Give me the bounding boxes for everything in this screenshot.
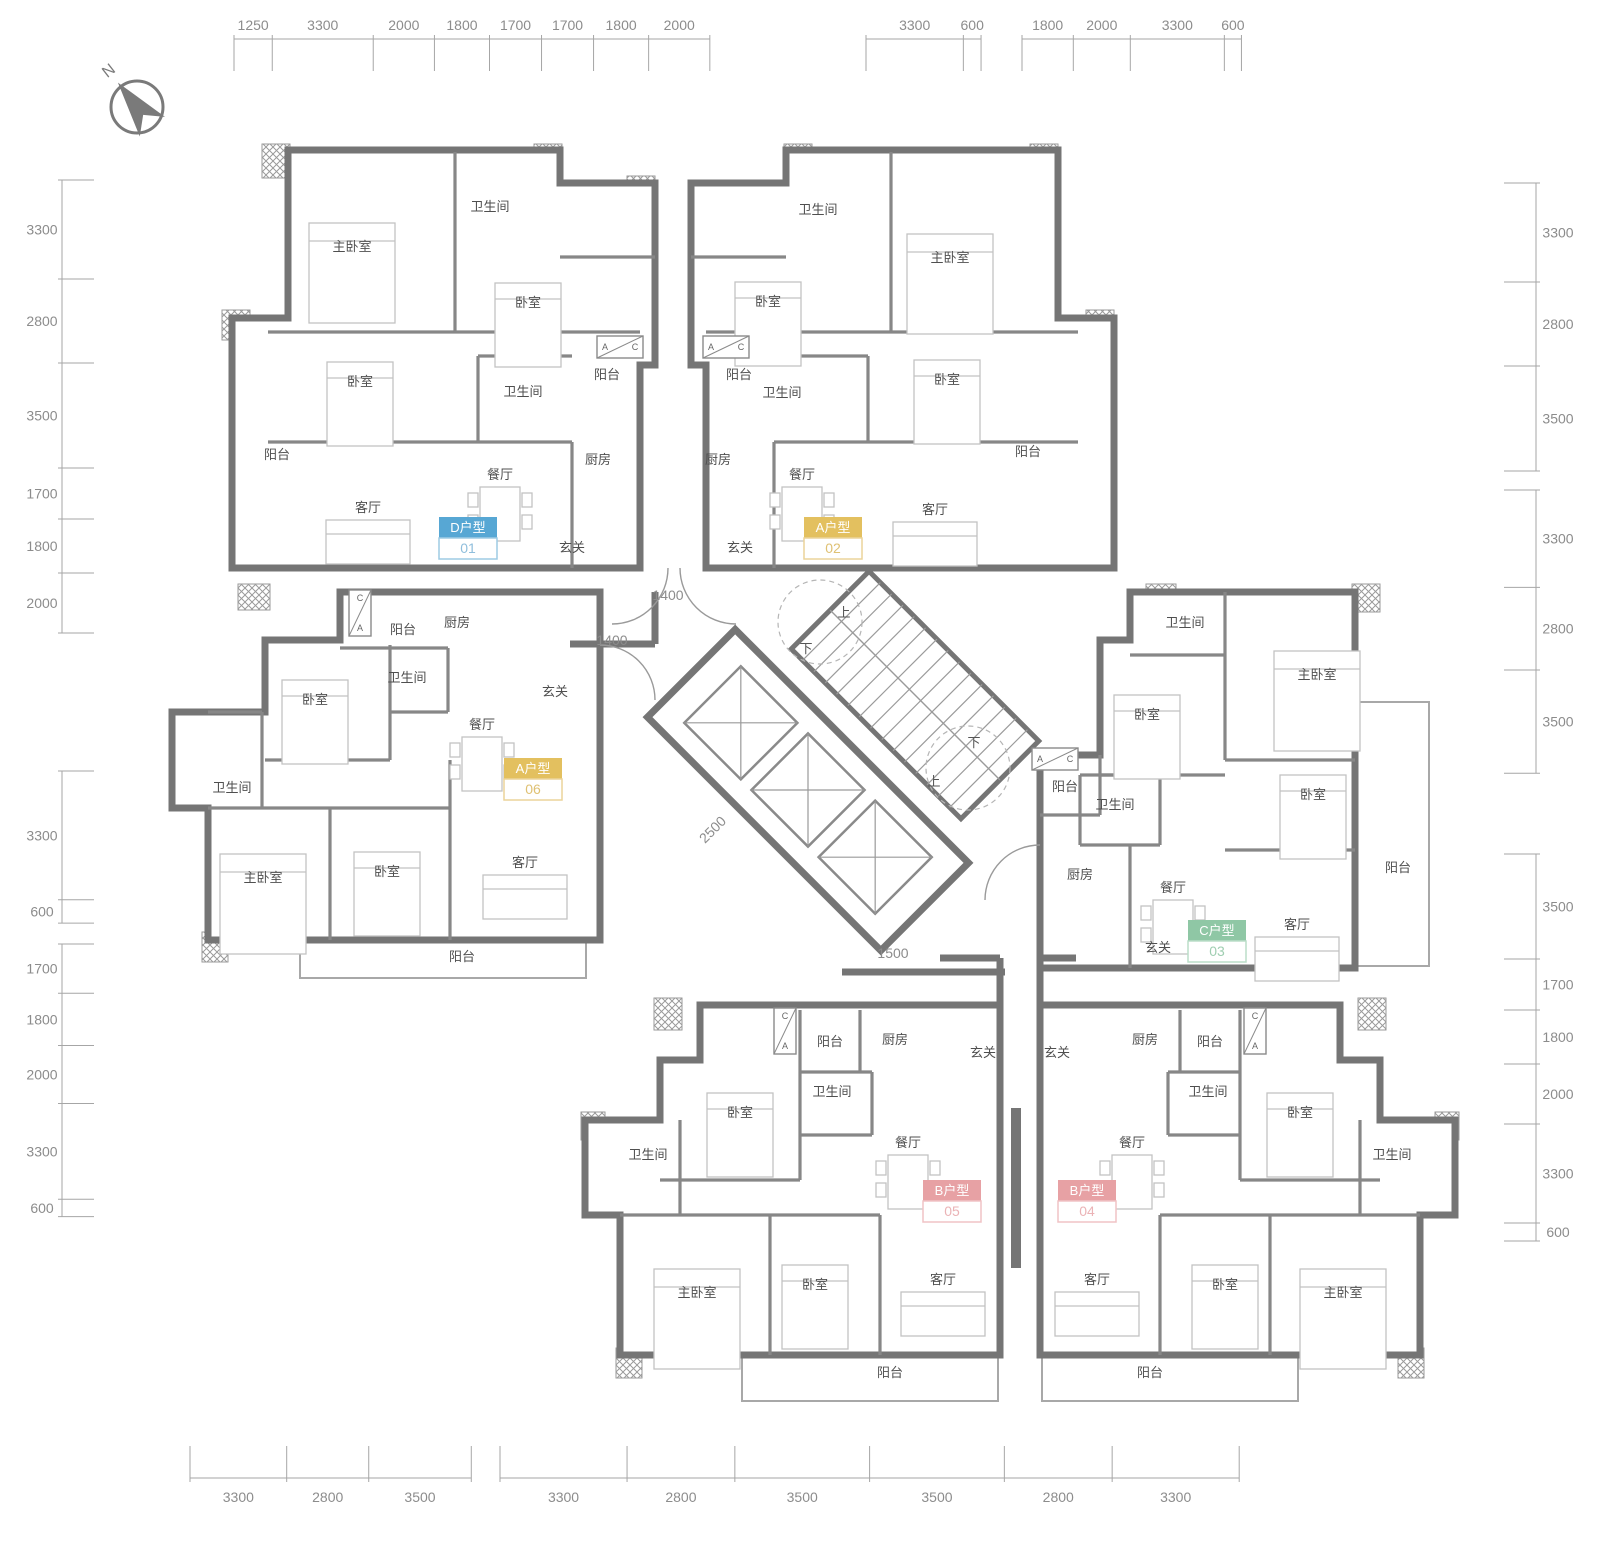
unit-type-label: A户型 (516, 761, 551, 776)
dimension-value: 600 (1221, 17, 1245, 33)
room-label: 厨房 (882, 1032, 908, 1047)
room-label: 阳台 (390, 622, 416, 637)
dimension-value: 3300 (223, 1489, 254, 1505)
room-label: 客厅 (1084, 1272, 1110, 1287)
sofa (1255, 937, 1339, 981)
balcony-rail (1042, 1357, 1298, 1401)
door-swing (600, 645, 655, 700)
room-label: 卫生间 (212, 780, 251, 795)
room-label: 阳台 (1052, 779, 1078, 794)
dimension-value: 2800 (312, 1489, 343, 1505)
room-label: 客厅 (930, 1272, 956, 1287)
ac-letter: A (708, 342, 714, 352)
chair (450, 743, 460, 757)
chair (1141, 906, 1151, 920)
bed-double (654, 1269, 740, 1369)
room-label: 卧室 (1134, 707, 1160, 722)
balcony-rail (300, 942, 586, 978)
room-label: 主卧室 (243, 870, 282, 885)
room-label: 餐厅 (895, 1135, 921, 1150)
room-label: 阳台 (1385, 860, 1411, 875)
room-label: 阳台 (877, 1365, 903, 1380)
room-label: 餐厅 (1119, 1135, 1145, 1150)
chair (876, 1183, 886, 1197)
dimension-value: 1700 (1542, 977, 1573, 993)
stair-direction-label: 上 (837, 605, 850, 620)
room-label: 卧室 (1300, 787, 1326, 802)
room-label: 卧室 (374, 864, 400, 879)
room-label: 玄关 (1044, 1045, 1070, 1060)
unit-number: 03 (1209, 943, 1225, 959)
room-label: 主卧室 (930, 250, 969, 265)
dimension-value: 600 (30, 1200, 54, 1216)
unit-type-label: A户型 (816, 520, 851, 535)
door-swing (680, 568, 736, 624)
unit-number: 04 (1079, 1203, 1095, 1219)
structural-column-hatch (1358, 998, 1386, 1030)
bed-double (1274, 651, 1360, 751)
bed-double (907, 234, 993, 334)
unit-outer-wall (232, 150, 655, 568)
dimension-value: 2000 (26, 595, 57, 611)
room-label: 主卧室 (1297, 667, 1336, 682)
dimension-value: 2800 (665, 1489, 696, 1505)
dimension-value: 3500 (404, 1489, 435, 1505)
chair (1100, 1161, 1110, 1175)
ac-letter: A (357, 623, 363, 633)
room-label: 阳台 (1197, 1034, 1223, 1049)
dimension-value: 2800 (1542, 621, 1573, 637)
room-label: 客厅 (355, 500, 381, 515)
floorplan-svg: 1250330020001800170017001800200033006001… (0, 0, 1600, 1549)
inner-dimension: 1400 (596, 632, 627, 648)
balcony-rail (742, 1357, 998, 1401)
dimension-value: 3500 (1542, 411, 1573, 427)
chair (1195, 906, 1205, 920)
ac-letter: C (782, 1011, 789, 1021)
bed-double (309, 223, 395, 323)
dimension-value: 2000 (664, 17, 695, 33)
room-label: 主卧室 (1323, 1285, 1362, 1300)
room-label: 卧室 (755, 294, 781, 309)
dimension-value: 1700 (552, 17, 583, 33)
dimension-value: 3500 (26, 408, 57, 424)
room-label: 卫生间 (503, 384, 542, 399)
room-label: 卧室 (727, 1105, 753, 1120)
dimension-value: 2800 (1542, 316, 1573, 332)
room-label: 卧室 (515, 295, 541, 310)
room-label: 卫生间 (470, 199, 509, 214)
room-label: 卧室 (302, 692, 328, 707)
structural-column-hatch (654, 998, 682, 1030)
sofa (901, 1292, 985, 1336)
room-label: 阳台 (817, 1034, 843, 1049)
chair (1154, 1183, 1164, 1197)
dimension-value: 3300 (899, 17, 930, 33)
dimension-value: 2000 (1086, 17, 1117, 33)
dining-table (1112, 1155, 1152, 1209)
core-layer: 上下下上 (647, 571, 1038, 950)
room-label: 餐厅 (469, 717, 495, 732)
unit-type-label: B户型 (1070, 1183, 1105, 1198)
dimension-value: 2000 (388, 17, 419, 33)
room-label: 客厅 (512, 855, 538, 870)
dimension-value: 600 (30, 903, 54, 919)
chair (450, 765, 460, 779)
room-label: 卧室 (934, 372, 960, 387)
room-label: 阳台 (264, 447, 290, 462)
room-label: 餐厅 (1160, 880, 1186, 895)
dimension-value: 1800 (446, 17, 477, 33)
dimension-value: 3500 (1542, 714, 1573, 730)
dimension-value: 3500 (921, 1489, 952, 1505)
room-label: 客厅 (922, 502, 948, 517)
room-label: 卧室 (347, 374, 373, 389)
dimension-value: 1700 (26, 486, 57, 502)
ac-letter: C (632, 342, 639, 352)
room-label: 卫生间 (1165, 615, 1204, 630)
chair (770, 493, 780, 507)
bed-double (220, 854, 306, 954)
sofa (483, 875, 567, 919)
stair-direction-label: 下 (967, 735, 980, 750)
room-label: 客厅 (1284, 917, 1310, 932)
ac-letter: A (602, 342, 608, 352)
dimension-value: 3500 (1542, 899, 1573, 915)
room-label: 餐厅 (487, 467, 513, 482)
room-label: 阳台 (594, 367, 620, 382)
room-label: 阳台 (726, 367, 752, 382)
unit-type-label: C户型 (1199, 923, 1234, 938)
room-label: 卫生间 (1188, 1084, 1227, 1099)
dimension-value: 3300 (307, 17, 338, 33)
dimension-value: 1800 (1542, 1029, 1573, 1045)
room-label: 阳台 (1137, 1365, 1163, 1380)
room-label: 玄关 (542, 684, 568, 699)
dining-table (888, 1155, 928, 1209)
room-label: 阳台 (449, 949, 475, 964)
bed-double (1300, 1269, 1386, 1369)
inner-dimension: 1400 (652, 587, 683, 603)
room-label: 卧室 (1212, 1277, 1238, 1292)
room-label: 厨房 (1132, 1032, 1158, 1047)
dimension-value: 600 (961, 17, 985, 33)
dimension-value: 1800 (26, 1011, 57, 1027)
chair (522, 515, 532, 529)
unit-type-label: B户型 (935, 1183, 970, 1198)
unit-number: 01 (460, 540, 476, 556)
dimension-value: 1800 (606, 17, 637, 33)
room-label: 玄关 (727, 540, 753, 555)
chair (468, 493, 478, 507)
door-swing (985, 845, 1040, 900)
balcony-rail (1357, 702, 1429, 966)
chair (770, 515, 780, 529)
dimension-value: 2800 (1043, 1489, 1074, 1505)
dimension-value: 600 (1546, 1224, 1570, 1240)
dimension-value: 1800 (26, 538, 57, 554)
dimension-value: 1250 (238, 17, 269, 33)
dimension-value: 3300 (1160, 1489, 1191, 1505)
inner-dimension: 1500 (877, 945, 908, 961)
ac-letter: A (1252, 1041, 1258, 1051)
dimension-value: 3300 (1542, 531, 1573, 547)
sofa (1055, 1292, 1139, 1336)
dimension-value: 2000 (1542, 1086, 1573, 1102)
room-label: 卧室 (802, 1277, 828, 1292)
dimension-value: 1700 (500, 17, 531, 33)
room-label: 卧室 (1287, 1105, 1313, 1120)
room-label: 厨房 (444, 615, 470, 630)
dimension-value: 3300 (26, 222, 57, 238)
room-label: 卫生间 (762, 385, 801, 400)
sofa (893, 522, 977, 566)
dimension-value: 3300 (1542, 1166, 1573, 1182)
unit-number: 06 (525, 781, 541, 797)
room-label: 玄关 (970, 1045, 996, 1060)
ac-letter: A (1037, 754, 1043, 764)
dimension-value: 2000 (26, 1067, 57, 1083)
dimension-value: 3300 (26, 1143, 57, 1159)
floorplan-canvas: 1250330020001800170017001800200033006001… (0, 0, 1600, 1549)
room-label: 阳台 (1015, 444, 1041, 459)
chair (522, 493, 532, 507)
room-label: 厨房 (705, 452, 731, 467)
chair (1154, 1161, 1164, 1175)
chair (824, 493, 834, 507)
dimension-value: 2800 (26, 313, 57, 329)
sofa (326, 520, 410, 564)
dimension-value: 3300 (1542, 225, 1573, 241)
unit-type-label: D户型 (450, 520, 485, 535)
stair-direction-label: 上 (927, 774, 940, 789)
room-label: 卫生间 (1372, 1147, 1411, 1162)
ac-letter: C (1067, 754, 1074, 764)
structural-column-hatch (238, 584, 270, 610)
inner-dimension: 2500 (696, 813, 729, 846)
room-label: 卫生间 (1095, 797, 1134, 812)
dimension-value: 1800 (1032, 17, 1063, 33)
dining-table (462, 737, 502, 791)
ac-letter: C (738, 342, 745, 352)
room-label: 主卧室 (332, 239, 371, 254)
dimension-value: 3300 (548, 1489, 579, 1505)
ac-letter: A (782, 1041, 788, 1051)
north-compass-icon: N (91, 55, 165, 137)
room-label: 卫生间 (812, 1084, 851, 1099)
room-label: 卫生间 (387, 670, 426, 685)
chair (876, 1161, 886, 1175)
room-label: 卫生间 (798, 202, 837, 217)
room-label: 玄关 (559, 540, 585, 555)
stair-direction-label: 下 (799, 641, 812, 656)
dimension-value: 3300 (1162, 17, 1193, 33)
dimension-value: 3500 (787, 1489, 818, 1505)
room-label: 厨房 (585, 452, 611, 467)
unit-number: 05 (944, 1203, 960, 1219)
room-label: 主卧室 (677, 1285, 716, 1300)
room-label: 卫生间 (628, 1147, 667, 1162)
unit-number: 02 (825, 540, 841, 556)
compass-n-label: N (99, 61, 119, 82)
dimension-value: 3300 (26, 827, 57, 843)
chair (504, 743, 514, 757)
room-label: 厨房 (1067, 867, 1093, 882)
ac-letter: C (1252, 1011, 1259, 1021)
ac-letter: C (357, 593, 364, 603)
dimension-value: 1700 (26, 961, 57, 977)
room-label: 玄关 (1145, 940, 1171, 955)
room-label: 餐厅 (789, 467, 815, 482)
chair (930, 1161, 940, 1175)
